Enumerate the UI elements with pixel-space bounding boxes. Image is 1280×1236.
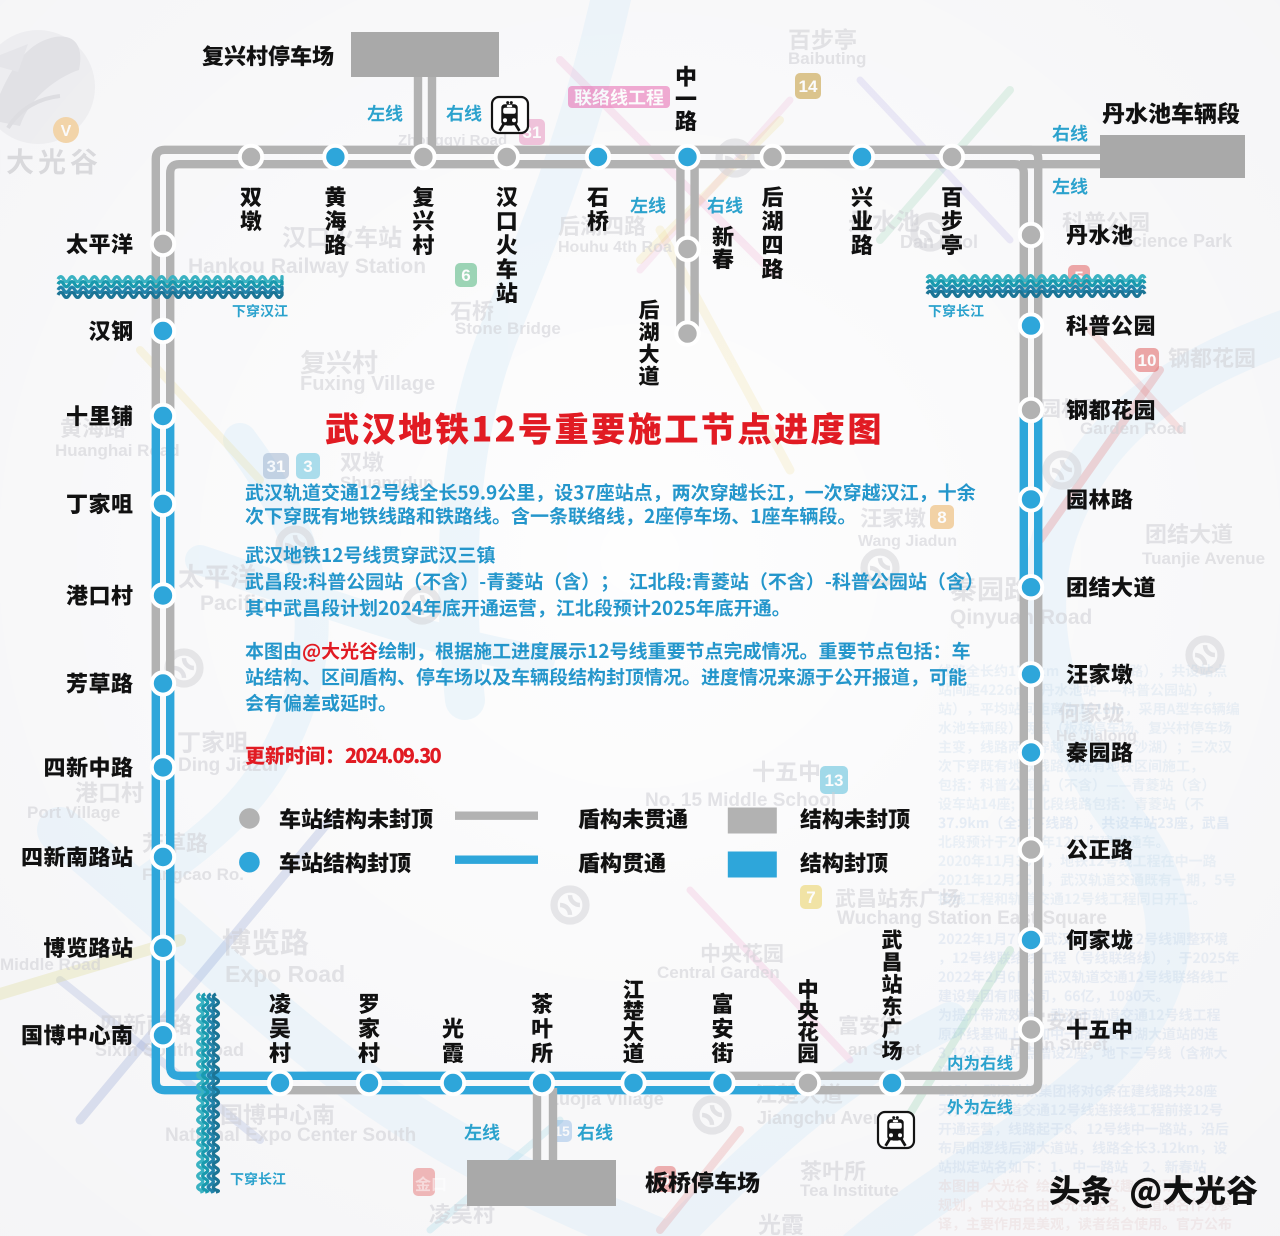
svg-text:Wang Jiadun: Wang Jiadun — [858, 533, 957, 550]
svg-text:Baibuting: Baibuting — [788, 49, 866, 68]
svg-text:Middle Road: Middle Road — [0, 955, 101, 974]
svg-text:Stone Bridge: Stone Bridge — [455, 319, 561, 338]
svg-text:8: 8 — [937, 508, 946, 527]
svg-text:Houhu 4th Roa: Houhu 4th Roa — [558, 239, 672, 256]
svg-text:Science Park: Science Park — [1120, 231, 1233, 251]
svg-text:Dan Pool: Dan Pool — [900, 232, 978, 252]
svg-text:Ding Jiazui: Ding Jiazui — [178, 755, 278, 776]
svg-text:Hankou Railway Station: Hankou Railway Station — [188, 255, 426, 278]
svg-text:6: 6 — [461, 266, 470, 285]
svg-text:3: 3 — [303, 457, 312, 476]
svg-text:13: 13 — [825, 771, 844, 790]
svg-text:10: 10 — [1138, 351, 1157, 370]
svg-text:14: 14 — [799, 77, 818, 96]
svg-text:Fuxing Village: Fuxing Village — [300, 373, 435, 395]
svg-text:Expo Road: Expo Road — [225, 961, 345, 987]
svg-text:V: V — [61, 123, 72, 140]
svg-text:Huanghai Road: Huanghai Road — [55, 441, 180, 460]
svg-text:Central Garden: Central Garden — [657, 963, 780, 982]
svg-text:Port Village: Port Village — [27, 803, 120, 822]
svg-text:7: 7 — [806, 888, 815, 907]
svg-text:Tuanjie Avenue: Tuanjie Avenue — [1142, 549, 1265, 568]
svg-text:Wuchang Station East Square: Wuchang Station East Square — [837, 908, 1107, 929]
svg-text:31: 31 — [267, 457, 286, 476]
svg-text:Tea Institute: Tea Institute — [800, 1181, 899, 1200]
svg-text:Garden Road: Garden Road — [1080, 419, 1187, 438]
